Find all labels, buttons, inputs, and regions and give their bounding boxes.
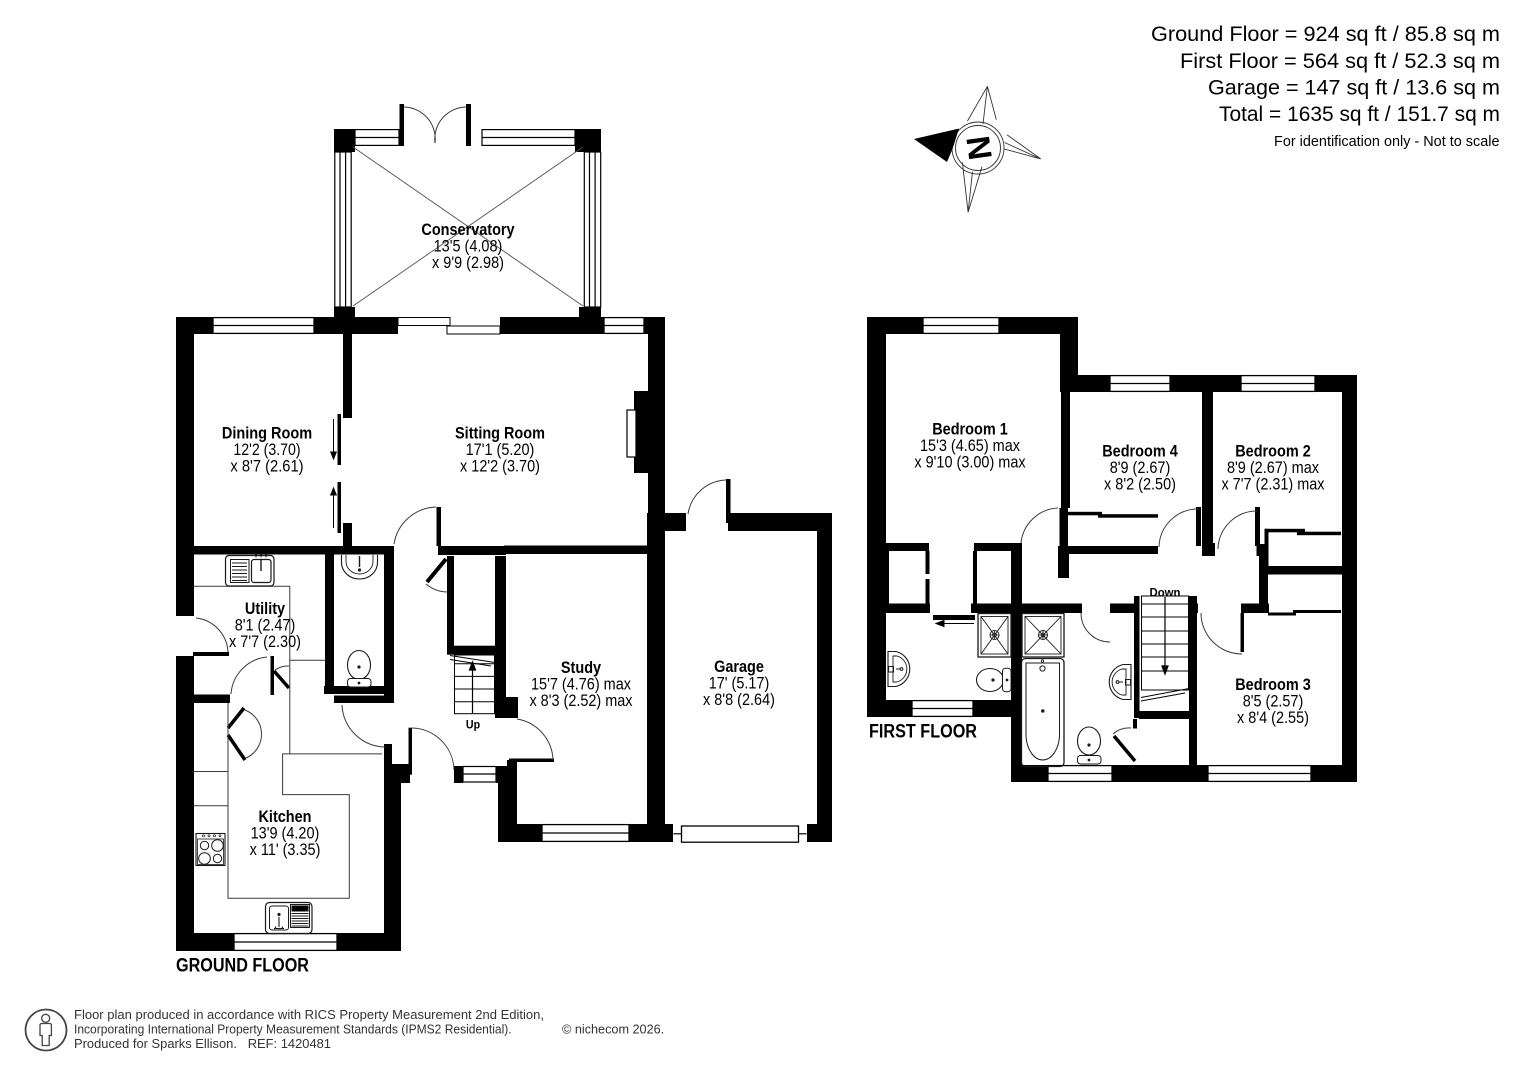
svg-text:Bedroom 4: Bedroom 4 bbox=[1102, 442, 1178, 460]
svg-text:Dining Room: Dining Room bbox=[222, 424, 312, 442]
svg-text:x 8'3 (2.52) max: x 8'3 (2.52) max bbox=[529, 692, 632, 710]
svg-text:Bedroom 1: Bedroom 1 bbox=[932, 420, 1008, 438]
svg-text:x 7'7 (2.31) max: x 7'7 (2.31) max bbox=[1221, 475, 1324, 493]
svg-text:12'2 (3.70): 12'2 (3.70) bbox=[233, 441, 300, 459]
svg-text:8'9 (2.67): 8'9 (2.67) bbox=[1110, 459, 1171, 477]
svg-text:x 11' (3.35): x 11' (3.35) bbox=[250, 841, 321, 859]
svg-text:x 9'9 (2.98): x 9'9 (2.98) bbox=[432, 254, 504, 272]
svg-text:8'9 (2.67) max: 8'9 (2.67) max bbox=[1227, 459, 1319, 477]
svg-text:Sitting Room: Sitting Room bbox=[455, 424, 545, 442]
svg-text:x 8'4 (2.55): x 8'4 (2.55) bbox=[1237, 709, 1309, 727]
svg-text:Utility: Utility bbox=[245, 600, 285, 618]
svg-text:© nichecom 2026.: © nichecom 2026. bbox=[562, 1022, 664, 1037]
svg-text:Bedroom 3: Bedroom 3 bbox=[1235, 676, 1311, 694]
svg-text:17' (5.17): 17' (5.17) bbox=[709, 674, 770, 692]
svg-text:Ground Floor = 924 sq ft / 85.: Ground Floor = 924 sq ft / 85.8 sq m bbox=[1151, 22, 1500, 46]
svg-text:Total = 1635 sq ft / 151.7 sq: Total = 1635 sq ft / 151.7 sq m bbox=[1219, 102, 1500, 126]
svg-text:x 12'2 (3.70): x 12'2 (3.70) bbox=[460, 457, 540, 475]
svg-text:15'7 (4.76) max: 15'7 (4.76) max bbox=[531, 675, 631, 693]
svg-text:Kitchen: Kitchen bbox=[259, 808, 312, 826]
svg-text:Garage = 147 sq ft / 13.6 sq m: Garage = 147 sq ft / 13.6 sq m bbox=[1208, 76, 1500, 100]
svg-text:x 8'8 (2.64): x 8'8 (2.64) bbox=[703, 691, 775, 709]
svg-text:x 7'7 (2.30): x 7'7 (2.30) bbox=[229, 633, 301, 651]
svg-text:Bedroom 2: Bedroom 2 bbox=[1235, 442, 1311, 460]
svg-text:x 8'2 (2.50): x 8'2 (2.50) bbox=[1104, 475, 1176, 493]
svg-text:N: N bbox=[959, 133, 999, 162]
svg-text:x 8'7 (2.61): x 8'7 (2.61) bbox=[230, 457, 303, 475]
svg-text:13'9 (4.20): 13'9 (4.20) bbox=[251, 824, 320, 842]
svg-text:Study: Study bbox=[561, 659, 601, 677]
svg-text:8'5 (2.57): 8'5 (2.57) bbox=[1243, 692, 1304, 710]
svg-text:For identification only - Not: For identification only - Not to scale bbox=[1274, 134, 1500, 150]
svg-text:Produced for Sparks Ellison.: Produced for Sparks Ellison. REF: 142048… bbox=[74, 1036, 331, 1051]
svg-text:17'1 (5.20): 17'1 (5.20) bbox=[466, 441, 535, 459]
svg-text:Conservatory: Conservatory bbox=[421, 221, 514, 239]
svg-text:x 9'10 (3.00) max: x 9'10 (3.00) max bbox=[914, 453, 1025, 471]
svg-text:Incorporating International Pr: Incorporating International Property Mea… bbox=[74, 1022, 512, 1037]
svg-text:Up: Up bbox=[466, 718, 480, 732]
svg-text:First Floor = 564 sq ft / 52.3: First Floor = 564 sq ft / 52.3 sq m bbox=[1180, 49, 1500, 73]
svg-text:8'1 (2.47): 8'1 (2.47) bbox=[235, 616, 296, 634]
svg-text:15'3 (4.65) max: 15'3 (4.65) max bbox=[920, 437, 1020, 455]
svg-text:Garage: Garage bbox=[714, 658, 764, 676]
svg-text:13'5 (4.08): 13'5 (4.08) bbox=[434, 237, 503, 255]
svg-text:GROUND FLOOR: GROUND FLOOR bbox=[176, 956, 309, 977]
svg-text:Floor plan produced in accorda: Floor plan produced in accordance with R… bbox=[74, 1007, 544, 1022]
svg-text:FIRST FLOOR: FIRST FLOOR bbox=[869, 722, 977, 743]
svg-text:Down: Down bbox=[1150, 586, 1181, 600]
